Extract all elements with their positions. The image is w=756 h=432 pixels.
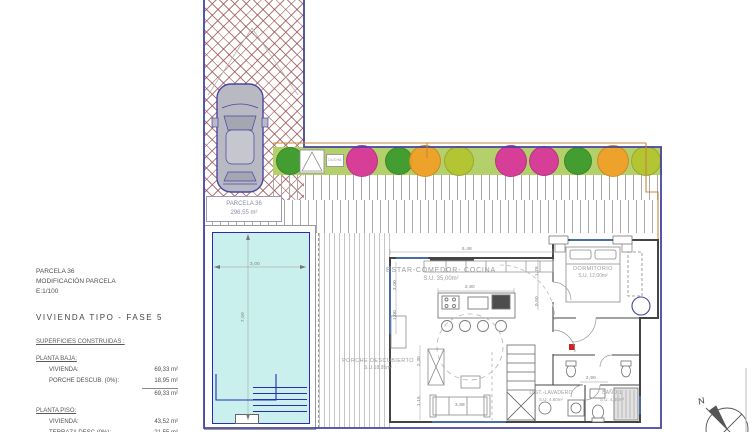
room-label-bano: BAÑO 1 S.U. 4,40m² bbox=[586, 390, 638, 403]
dimension-label: 0,50 bbox=[534, 296, 539, 306]
room-area: S.U. 4,60m² bbox=[520, 397, 582, 403]
dimension-arrows bbox=[214, 234, 306, 420]
dimension-label: 2,80 bbox=[465, 284, 475, 289]
dimension-label: 3,00 bbox=[250, 261, 260, 266]
dimension-label: 5,48 bbox=[462, 246, 472, 251]
dimension-label: 7,50 bbox=[240, 312, 245, 322]
stairs bbox=[507, 345, 535, 420]
room-label-estar: ESTAR-COMEDOR- COCINA S.U. 35,00m² bbox=[385, 266, 497, 284]
room-name: PORCHE DESCUBIERTO bbox=[328, 358, 428, 365]
dimension-label: 2,30 bbox=[416, 356, 421, 366]
room-area: S.U. 12,00m² bbox=[556, 273, 630, 280]
dimension-label: 2,90 bbox=[586, 375, 596, 380]
dimension-label: 1,76 bbox=[534, 266, 539, 276]
garden-gate-icon bbox=[300, 150, 324, 173]
room-label-dormitorio: DORMITORIO S.U. 12,00m² bbox=[556, 266, 630, 280]
toilet bbox=[567, 365, 576, 377]
room-name: BAÑO 1 bbox=[586, 390, 638, 397]
room-label-lavadero: DIST.-LAVADERO S.U. 4,60m² bbox=[520, 390, 582, 403]
pool-bench bbox=[216, 374, 276, 400]
room-name: DIST.-LAVADERO bbox=[520, 390, 582, 397]
dimension-label: 3,00 bbox=[392, 280, 397, 290]
site-plan-sheet: PARCELA 36 MODIFICACIÓN PARCELA E:1/100 … bbox=[0, 0, 756, 432]
toilet bbox=[593, 405, 604, 419]
room-area: S.U. 35,00m² bbox=[385, 275, 497, 283]
toilet bbox=[622, 365, 631, 377]
room-name: ESTAR-COMEDOR- COCINA bbox=[385, 266, 497, 275]
dimension-label: 1,16 bbox=[416, 396, 421, 406]
north-compass-icon bbox=[706, 406, 748, 432]
dimension-label: 3,88 bbox=[455, 402, 465, 407]
car-icon bbox=[212, 84, 268, 192]
room-name: DORMITORIO bbox=[556, 266, 630, 273]
room-area: S.U. 4,40m² bbox=[586, 397, 638, 403]
room-label-porche: PORCHE DESCUBIERTO S.U.18,95m² bbox=[328, 358, 428, 372]
room-area: S.U.18,95m² bbox=[328, 365, 428, 372]
dimension-label: 1,00 bbox=[392, 310, 397, 320]
